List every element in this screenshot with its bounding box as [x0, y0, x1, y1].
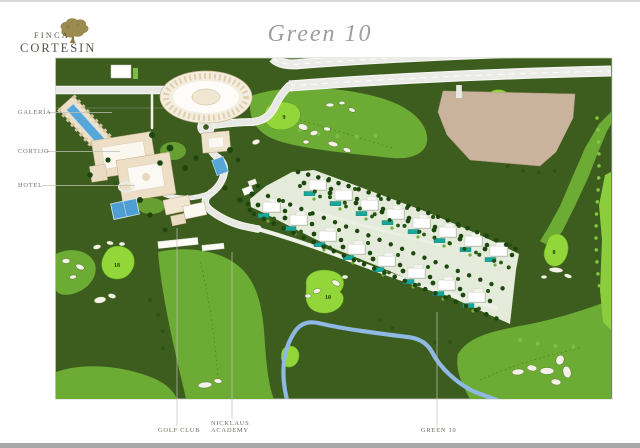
masterplan-page: { "logo": { "line1": "FINCA", "line2": "…: [0, 0, 640, 448]
label-nicklaus-academy: NICKLAUS ACADEMY: [211, 420, 249, 434]
label-green-10: GREEN 10: [421, 427, 456, 434]
label-hotel: HOTEL: [18, 182, 43, 189]
label-galeria: GALERÍA: [18, 109, 51, 116]
spa-building: [201, 131, 231, 153]
hotel-oval-building: [160, 71, 252, 123]
hotel-building: [116, 152, 176, 202]
hole-10-number: 10: [325, 295, 331, 301]
service-building: [111, 65, 131, 78]
label-cortijo: CORTIJO: [18, 148, 49, 155]
hole-9-number: 9: [283, 115, 286, 121]
page-bottom-edge: [0, 443, 640, 448]
label-golf-club: GOLF CLUB: [158, 427, 200, 434]
hole-8-number: 8: [553, 250, 556, 256]
hole-18-number: 18: [114, 263, 120, 269]
resort-masterplan-map: 9 18 10 8: [0, 0, 640, 448]
page-title: Green 10: [0, 21, 640, 48]
